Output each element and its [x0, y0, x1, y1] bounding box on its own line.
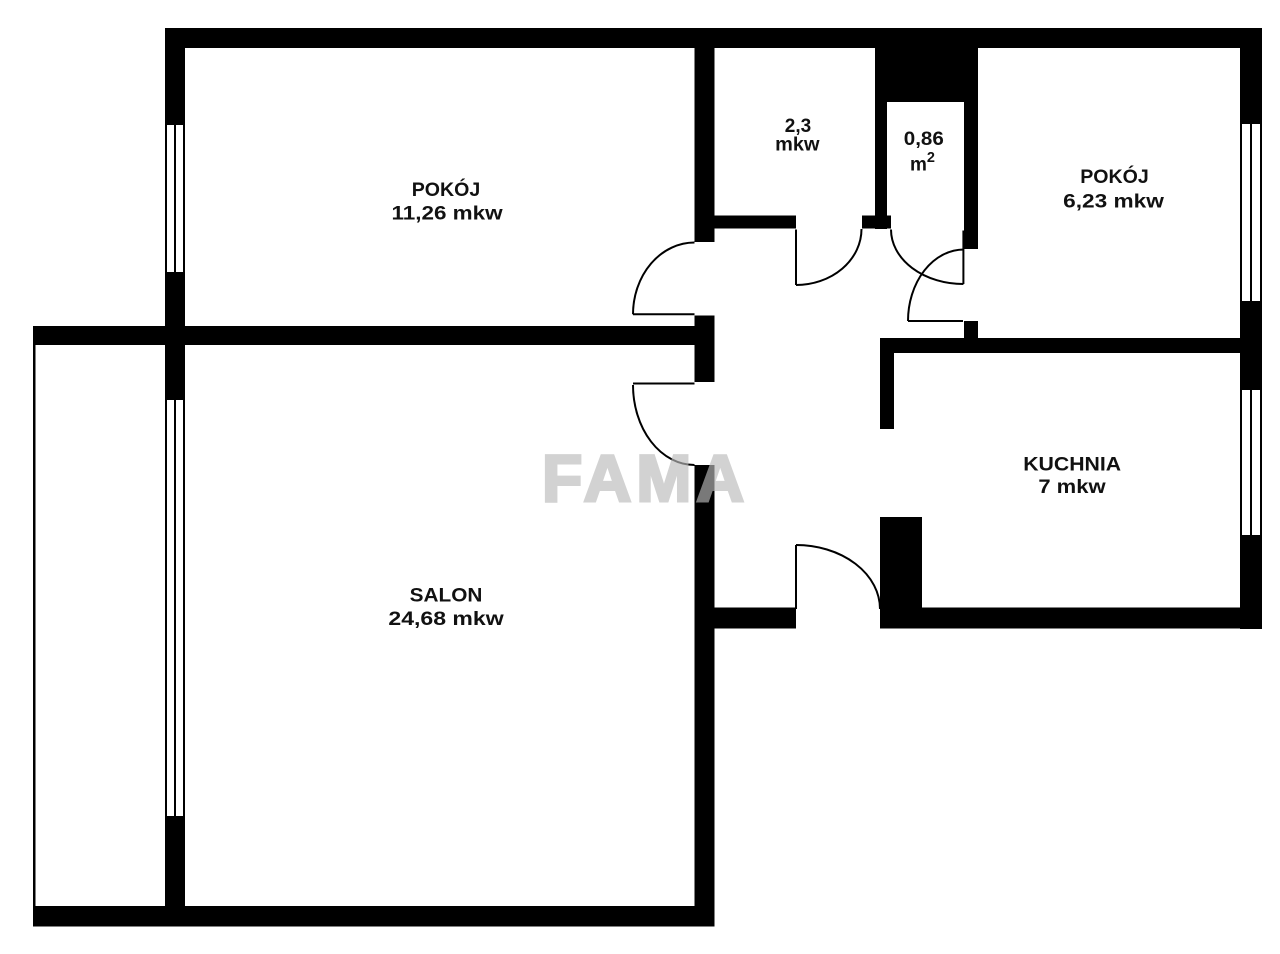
svg-text:24,68 mkw: 24,68 mkw [388, 609, 504, 630]
svg-text:POKÓJ: POKÓJ [1080, 164, 1149, 188]
svg-text:FAMA: FAMA [542, 441, 749, 515]
svg-text:mkw: mkw [775, 134, 820, 155]
svg-text:0,86: 0,86 [904, 129, 944, 150]
svg-text:KUCHNIA: KUCHNIA [1023, 454, 1121, 475]
svg-text:SALON: SALON [410, 585, 483, 606]
svg-text:6,23 mkw: 6,23 mkw [1063, 191, 1165, 212]
svg-text:POKÓJ: POKÓJ [412, 177, 481, 201]
svg-text:7 mkw: 7 mkw [1038, 476, 1106, 497]
svg-text:11,26 mkw: 11,26 mkw [391, 203, 503, 224]
